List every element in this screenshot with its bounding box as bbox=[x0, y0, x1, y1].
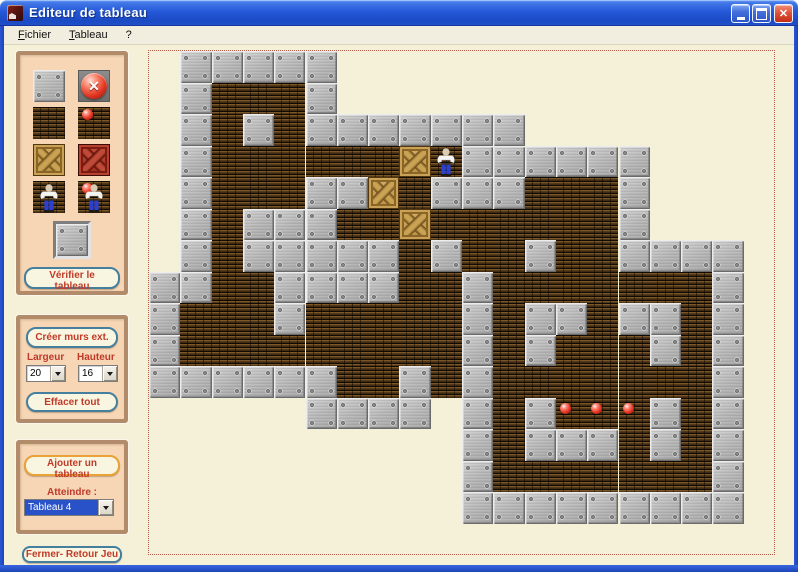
level-tile-wall[interactable] bbox=[306, 240, 337, 272]
level-tile-floor[interactable] bbox=[399, 272, 430, 304]
level-tile-floor[interactable] bbox=[587, 209, 618, 241]
player-sprite bbox=[83, 184, 105, 213]
level-tile-floor[interactable] bbox=[337, 335, 368, 367]
window-border-right bbox=[794, 26, 798, 572]
level-tile-wall[interactable] bbox=[306, 51, 337, 83]
level-tile-wall[interactable] bbox=[619, 303, 650, 335]
height-label: Hauteur bbox=[77, 352, 115, 363]
level-tile-wall[interactable] bbox=[650, 492, 681, 524]
level-tile-floor[interactable] bbox=[681, 303, 712, 335]
target-ball-icon bbox=[591, 403, 602, 414]
palette-wall-tile[interactable] bbox=[33, 70, 65, 102]
create-outer-walls-button[interactable]: Créer murs ext. bbox=[26, 327, 118, 348]
level-tile-floor[interactable] bbox=[493, 398, 524, 430]
level-tile-wall[interactable] bbox=[306, 209, 337, 241]
minimize-button[interactable] bbox=[731, 4, 750, 23]
menu-item-?[interactable]: ? bbox=[117, 27, 141, 43]
eraser-icon bbox=[81, 73, 107, 99]
level-tile-floor[interactable] bbox=[212, 83, 243, 115]
level-tile-wall[interactable] bbox=[399, 366, 430, 398]
level-tile-wall[interactable] bbox=[462, 303, 493, 335]
level-tile-crate[interactable] bbox=[399, 146, 430, 178]
level-tile-floor[interactable] bbox=[337, 366, 368, 398]
level-canvas[interactable] bbox=[148, 50, 775, 555]
level-tile-floor[interactable] bbox=[462, 240, 493, 272]
level-tile-wall[interactable] bbox=[180, 146, 211, 178]
level-tile-floor[interactable] bbox=[619, 429, 650, 461]
level-tile-wall[interactable] bbox=[212, 366, 243, 398]
level-tile-floor[interactable] bbox=[462, 209, 493, 241]
boards-panel: Ajouter un tableau Atteindre : Tableau 4 bbox=[16, 440, 128, 534]
level-tile-wall[interactable] bbox=[619, 240, 650, 272]
target-ball-icon bbox=[82, 109, 93, 120]
level-tile-wall[interactable] bbox=[306, 83, 337, 115]
level-tile-floor[interactable] bbox=[431, 209, 462, 241]
level-tile-wall[interactable] bbox=[493, 177, 524, 209]
level-tile-wall[interactable] bbox=[274, 209, 305, 241]
width-select[interactable]: 20 bbox=[26, 365, 66, 382]
level-tile-floor[interactable] bbox=[274, 83, 305, 115]
level-tile-wall[interactable] bbox=[274, 366, 305, 398]
level-tile-floor[interactable] bbox=[368, 146, 399, 178]
level-tile-floor[interactable] bbox=[212, 209, 243, 241]
level-tile-floor[interactable] bbox=[650, 366, 681, 398]
level-tile-floor[interactable] bbox=[180, 335, 211, 367]
level-tile-floor[interactable] bbox=[619, 366, 650, 398]
level-tile-wall[interactable] bbox=[243, 51, 274, 83]
level-tile-crate[interactable] bbox=[368, 177, 399, 209]
level-tile-floor[interactable] bbox=[587, 335, 618, 367]
level-tile-floor[interactable] bbox=[368, 303, 399, 335]
level-tile-floor[interactable] bbox=[587, 303, 618, 335]
level-tile-floor[interactable] bbox=[212, 114, 243, 146]
selected-tile-preview bbox=[53, 221, 91, 259]
level-tile-floor[interactable] bbox=[493, 461, 524, 493]
level-tile-wall[interactable] bbox=[149, 272, 180, 304]
level-tile-wall[interactable] bbox=[712, 335, 743, 367]
level-tile-floor[interactable] bbox=[399, 240, 430, 272]
level-tile-floor[interactable] bbox=[243, 83, 274, 115]
level-tile-wall[interactable] bbox=[212, 51, 243, 83]
clear-all-button[interactable]: Effacer tout bbox=[26, 392, 118, 412]
level-tile-floor[interactable] bbox=[243, 272, 274, 304]
height-select[interactable]: 16 bbox=[78, 365, 118, 382]
level-tile-floor[interactable] bbox=[368, 209, 399, 241]
palette-player-on-target-tile[interactable] bbox=[78, 181, 110, 213]
level-tile-wall[interactable] bbox=[274, 51, 305, 83]
level-tile-wall[interactable] bbox=[493, 492, 524, 524]
add-board-button[interactable]: Ajouter un tableau bbox=[24, 455, 120, 476]
level-tile-wall[interactable] bbox=[306, 114, 337, 146]
board-select-value: Tableau 4 bbox=[25, 500, 98, 515]
level-tile-floor[interactable] bbox=[681, 335, 712, 367]
width-label: Largeur bbox=[27, 352, 64, 363]
level-tile-floor[interactable] bbox=[243, 146, 274, 178]
level-tile-floor[interactable] bbox=[274, 177, 305, 209]
level-tile-floor[interactable] bbox=[556, 177, 587, 209]
level-tile-wall[interactable] bbox=[556, 492, 587, 524]
level-tile-wall[interactable] bbox=[462, 335, 493, 367]
level-tile-wall[interactable] bbox=[712, 461, 743, 493]
level-tile-wall[interactable] bbox=[180, 114, 211, 146]
target-ball-icon bbox=[560, 403, 571, 414]
level-tile-wall[interactable] bbox=[462, 429, 493, 461]
level-tile-floor[interactable] bbox=[243, 335, 274, 367]
level-tile-wall[interactable] bbox=[462, 492, 493, 524]
level-tile-wall[interactable] bbox=[587, 429, 618, 461]
level-tile-wall[interactable] bbox=[368, 398, 399, 430]
level-tile-wall[interactable] bbox=[650, 398, 681, 430]
level-tile-wall[interactable] bbox=[587, 146, 618, 178]
level-tile-floor[interactable] bbox=[525, 209, 556, 241]
level-tile-target[interactable] bbox=[556, 398, 587, 430]
palette-panel: Vérifier le tableau bbox=[16, 51, 128, 295]
level-tile-wall[interactable] bbox=[368, 240, 399, 272]
maximize-button[interactable] bbox=[752, 4, 771, 23]
level-tile-floor[interactable] bbox=[212, 177, 243, 209]
level-tile-floor[interactable] bbox=[556, 240, 587, 272]
level-tile-wall[interactable] bbox=[431, 240, 462, 272]
target-ball-icon bbox=[623, 403, 634, 414]
board-select[interactable]: Tableau 4 bbox=[24, 499, 114, 516]
level-tile-wall[interactable] bbox=[619, 492, 650, 524]
level-tile-floor[interactable] bbox=[681, 272, 712, 304]
app-area: FichierTableau? Vérifier le tableau Crée… bbox=[4, 26, 794, 565]
level-tile-floor[interactable] bbox=[587, 240, 618, 272]
level-tile-floor[interactable] bbox=[681, 429, 712, 461]
level-tile-floor[interactable] bbox=[243, 303, 274, 335]
level-tile-wall[interactable] bbox=[368, 114, 399, 146]
level-tile-floor[interactable] bbox=[493, 272, 524, 304]
level-tile-wall[interactable] bbox=[399, 398, 430, 430]
level-tile-floor[interactable] bbox=[619, 461, 650, 493]
chevron-down-icon[interactable] bbox=[98, 500, 113, 515]
level-tile-wall[interactable] bbox=[180, 51, 211, 83]
level-tile-floor[interactable] bbox=[493, 303, 524, 335]
level-tile-wall[interactable] bbox=[712, 240, 743, 272]
level-tile-wall[interactable] bbox=[712, 366, 743, 398]
level-tile-wall[interactable] bbox=[525, 303, 556, 335]
level-tile-wall[interactable] bbox=[525, 335, 556, 367]
level-tile-player[interactable] bbox=[431, 146, 462, 178]
level-tile-wall[interactable] bbox=[712, 303, 743, 335]
level-tile-target[interactable] bbox=[587, 398, 618, 430]
level-tile-floor[interactable] bbox=[337, 146, 368, 178]
palette-eraser-tool[interactable] bbox=[78, 70, 110, 102]
level-tile-floor[interactable] bbox=[493, 209, 524, 241]
level-tile-floor[interactable] bbox=[399, 177, 430, 209]
level-tile-floor[interactable] bbox=[650, 272, 681, 304]
level-tile-floor[interactable] bbox=[556, 335, 587, 367]
level-tile-wall[interactable] bbox=[337, 272, 368, 304]
menu-bar: FichierTableau? bbox=[4, 26, 794, 45]
level-tile-wall[interactable] bbox=[274, 303, 305, 335]
width-value: 20 bbox=[27, 366, 50, 381]
level-tile-floor[interactable] bbox=[212, 335, 243, 367]
level-tile-wall[interactable] bbox=[306, 272, 337, 304]
level-tile-wall[interactable] bbox=[243, 209, 274, 241]
close-icon[interactable]: ✕ bbox=[774, 4, 793, 23]
level-tile-wall[interactable] bbox=[306, 177, 337, 209]
level-tile-wall[interactable] bbox=[149, 303, 180, 335]
level-tile-wall[interactable] bbox=[399, 114, 430, 146]
level-tile-wall[interactable] bbox=[556, 429, 587, 461]
level-tile-floor[interactable] bbox=[431, 272, 462, 304]
level-tile-target[interactable] bbox=[619, 398, 650, 430]
player-sprite bbox=[38, 184, 60, 213]
level-tile-wall[interactable] bbox=[368, 272, 399, 304]
window-border-bottom bbox=[0, 565, 798, 572]
close-return-game-button[interactable]: Fermer- Retour Jeu bbox=[22, 546, 122, 563]
chevron-down-icon[interactable] bbox=[50, 366, 65, 381]
level-tile-wall[interactable] bbox=[650, 303, 681, 335]
player-sprite bbox=[435, 148, 457, 177]
verify-board-button[interactable]: Vérifier le tableau bbox=[24, 267, 120, 289]
level-tile-floor[interactable] bbox=[306, 303, 337, 335]
level-tile-wall[interactable] bbox=[462, 398, 493, 430]
level-tile-floor[interactable] bbox=[587, 366, 618, 398]
level-tile-wall[interactable] bbox=[681, 240, 712, 272]
level-tile-floor[interactable] bbox=[525, 177, 556, 209]
level-tile-wall[interactable] bbox=[180, 366, 211, 398]
level-tile-wall[interactable] bbox=[462, 114, 493, 146]
level-tile-floor[interactable] bbox=[274, 335, 305, 367]
level-tile-floor[interactable] bbox=[619, 335, 650, 367]
level-tile-crate[interactable] bbox=[399, 209, 430, 241]
level-tile-floor[interactable] bbox=[587, 177, 618, 209]
level-tile-floor[interactable] bbox=[431, 303, 462, 335]
level-tile-wall[interactable] bbox=[431, 177, 462, 209]
level-tile-wall[interactable] bbox=[462, 461, 493, 493]
tile-palette bbox=[33, 70, 110, 213]
level-tile-wall[interactable] bbox=[337, 240, 368, 272]
level-tile-wall[interactable] bbox=[180, 272, 211, 304]
level-tile-floor[interactable] bbox=[212, 303, 243, 335]
palette-player-tile[interactable] bbox=[33, 181, 65, 213]
level-tile-floor[interactable] bbox=[556, 461, 587, 493]
level-tile-wall[interactable] bbox=[493, 114, 524, 146]
level-tile-wall[interactable] bbox=[274, 272, 305, 304]
level-tile-wall[interactable] bbox=[180, 240, 211, 272]
level-tile-floor[interactable] bbox=[368, 335, 399, 367]
level-tile-floor[interactable] bbox=[274, 146, 305, 178]
level-tile-floor[interactable] bbox=[493, 429, 524, 461]
level-tile-floor[interactable] bbox=[587, 461, 618, 493]
level-tile-wall[interactable] bbox=[149, 366, 180, 398]
level-tile-wall[interactable] bbox=[712, 272, 743, 304]
level-tile-floor[interactable] bbox=[212, 146, 243, 178]
level-tile-floor[interactable] bbox=[180, 303, 211, 335]
level-tile-wall[interactable] bbox=[587, 492, 618, 524]
level-tile-wall[interactable] bbox=[337, 177, 368, 209]
level-tile-floor[interactable] bbox=[243, 177, 274, 209]
level-tile-floor[interactable] bbox=[212, 272, 243, 304]
tools-panel: Créer murs ext. Largeur Hauteur 20 16 Ef… bbox=[16, 315, 128, 423]
level-tile-wall[interactable] bbox=[619, 177, 650, 209]
level-tile-wall[interactable] bbox=[650, 429, 681, 461]
level-tile-wall[interactable] bbox=[462, 146, 493, 178]
level-tile-wall[interactable] bbox=[431, 114, 462, 146]
menu-item-tableau[interactable]: Tableau bbox=[60, 27, 117, 43]
level-tile-floor[interactable] bbox=[556, 209, 587, 241]
level-tile-wall[interactable] bbox=[525, 429, 556, 461]
level-tile-floor[interactable] bbox=[525, 461, 556, 493]
title-bar[interactable]: Editeur de tableau ✕ bbox=[0, 0, 798, 26]
palette-crate-tile[interactable] bbox=[33, 144, 65, 176]
level-tile-floor[interactable] bbox=[681, 398, 712, 430]
level-tile-wall[interactable] bbox=[180, 83, 211, 115]
level-tile-wall[interactable] bbox=[525, 240, 556, 272]
level-tile-floor[interactable] bbox=[525, 366, 556, 398]
level-tile-wall[interactable] bbox=[274, 240, 305, 272]
level-tile-floor[interactable] bbox=[368, 366, 399, 398]
level-tile-wall[interactable] bbox=[525, 146, 556, 178]
level-tile-wall[interactable] bbox=[243, 366, 274, 398]
level-tile-wall[interactable] bbox=[650, 335, 681, 367]
level-tile-floor[interactable] bbox=[399, 335, 430, 367]
palette-floor-tile[interactable] bbox=[33, 107, 65, 139]
chevron-down-icon[interactable] bbox=[102, 366, 117, 381]
level-tile-floor[interactable] bbox=[681, 461, 712, 493]
level-tile-wall[interactable] bbox=[180, 209, 211, 241]
palette-crate-on-target-tile[interactable] bbox=[78, 144, 110, 176]
level-tile-floor[interactable] bbox=[493, 240, 524, 272]
level-tile-wall[interactable] bbox=[337, 114, 368, 146]
level-tile-wall[interactable] bbox=[462, 366, 493, 398]
app-icon bbox=[7, 5, 23, 21]
palette-target-tile[interactable] bbox=[78, 107, 110, 139]
level-tile-wall[interactable] bbox=[462, 272, 493, 304]
level-tile-wall[interactable] bbox=[525, 398, 556, 430]
level-tile-wall[interactable] bbox=[712, 429, 743, 461]
level-tile-floor[interactable] bbox=[619, 272, 650, 304]
level-tile-floor[interactable] bbox=[399, 303, 430, 335]
level-tile-wall[interactable] bbox=[180, 177, 211, 209]
level-tile-wall[interactable] bbox=[556, 303, 587, 335]
goto-label: Atteindre : bbox=[20, 487, 124, 498]
level-tile-wall[interactable] bbox=[243, 114, 274, 146]
level-tile-floor[interactable] bbox=[681, 366, 712, 398]
level-tile-wall[interactable] bbox=[306, 366, 337, 398]
level-tile-floor[interactable] bbox=[493, 335, 524, 367]
level-tile-wall[interactable] bbox=[681, 492, 712, 524]
level-tile-floor[interactable] bbox=[493, 366, 524, 398]
level-tile-wall[interactable] bbox=[650, 240, 681, 272]
level-tile-floor[interactable] bbox=[650, 461, 681, 493]
level-tile-floor[interactable] bbox=[337, 303, 368, 335]
level-tile-floor[interactable] bbox=[525, 272, 556, 304]
level-tile-floor[interactable] bbox=[337, 209, 368, 241]
level-tile-wall[interactable] bbox=[493, 146, 524, 178]
level-tile-wall[interactable] bbox=[306, 398, 337, 430]
menu-item-fichier[interactable]: Fichier bbox=[9, 27, 60, 43]
level-tile-wall[interactable] bbox=[619, 146, 650, 178]
level-tile-wall[interactable] bbox=[337, 398, 368, 430]
level-tile-floor[interactable] bbox=[306, 146, 337, 178]
level-tile-wall[interactable] bbox=[525, 492, 556, 524]
level-tile-wall[interactable] bbox=[462, 177, 493, 209]
level-tile-wall[interactable] bbox=[712, 492, 743, 524]
window-title: Editeur de tableau bbox=[29, 5, 147, 20]
height-value: 16 bbox=[79, 366, 102, 381]
level-tile-floor[interactable] bbox=[274, 114, 305, 146]
level-tile-floor[interactable] bbox=[431, 366, 462, 398]
level-tile-floor[interactable] bbox=[306, 335, 337, 367]
level-tile-floor[interactable] bbox=[556, 272, 587, 304]
level-tile-floor[interactable] bbox=[587, 272, 618, 304]
level-tile-wall[interactable] bbox=[556, 146, 587, 178]
level-tile-wall[interactable] bbox=[149, 335, 180, 367]
level-tile-wall[interactable] bbox=[619, 209, 650, 241]
level-tile-wall[interactable] bbox=[243, 240, 274, 272]
level-tile-floor[interactable] bbox=[431, 335, 462, 367]
level-tile-wall[interactable] bbox=[712, 398, 743, 430]
editor-window: Editeur de tableau ✕ FichierTableau? Vér… bbox=[0, 0, 798, 572]
level-tile-floor[interactable] bbox=[212, 240, 243, 272]
level-tile-floor[interactable] bbox=[556, 366, 587, 398]
